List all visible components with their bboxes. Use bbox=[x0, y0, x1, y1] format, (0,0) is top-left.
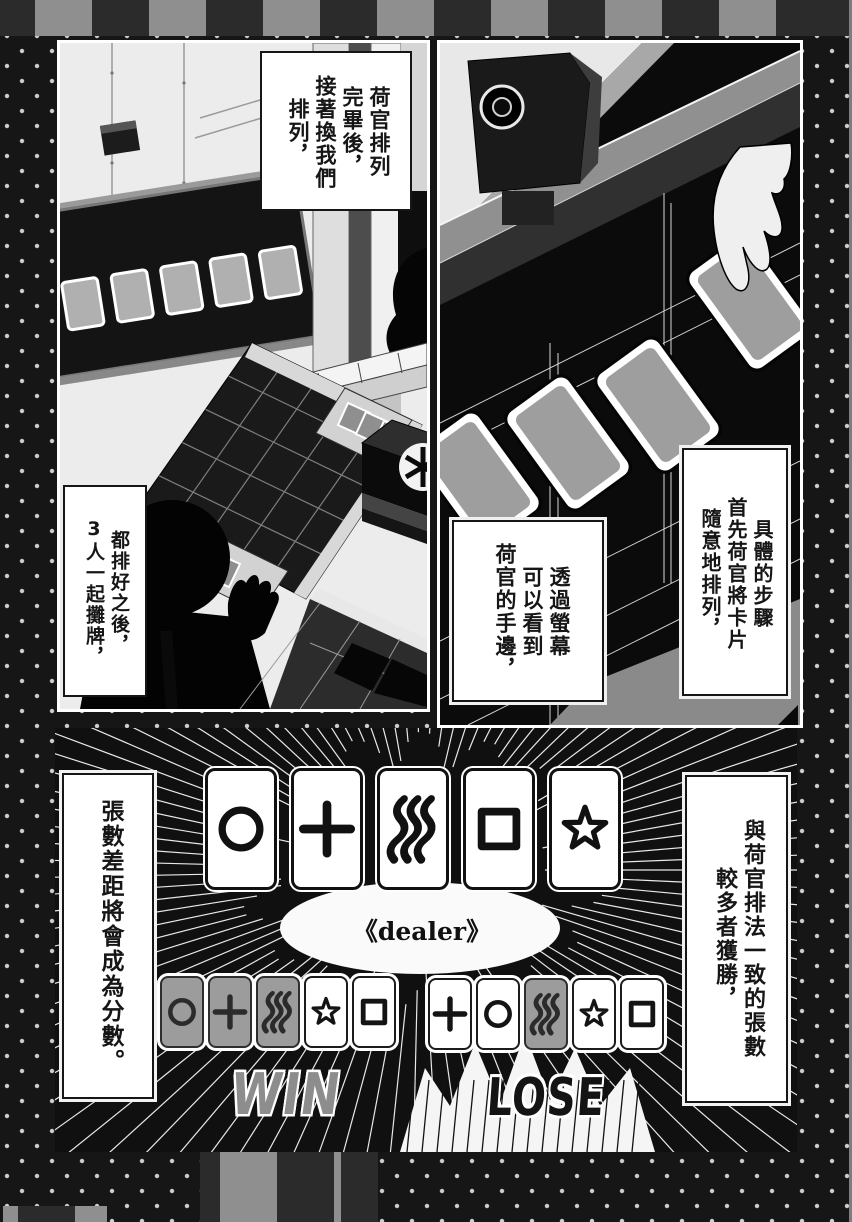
win-card-row bbox=[160, 976, 396, 1048]
lose-card-row bbox=[428, 978, 664, 1050]
panel-camera-hand: 透過螢幕 可以看到 荷官的手邊， 具體的步驟 首先荷官將卡片 隨意地排列， bbox=[437, 40, 803, 728]
note-score-difference: 張數差距將會成為分數。 bbox=[62, 773, 154, 1099]
waves-icon bbox=[528, 986, 564, 1042]
checkerboard-border-bottom-row2 bbox=[3, 1206, 107, 1222]
dealer-card-square bbox=[463, 768, 535, 890]
win-card-circle-match bbox=[160, 976, 204, 1048]
lose-card-plus bbox=[428, 978, 472, 1050]
lose-card-circle bbox=[476, 978, 520, 1050]
plus-icon bbox=[212, 984, 248, 1040]
lose-card-square bbox=[620, 978, 664, 1050]
dealer-label: 《dealer》 bbox=[337, 912, 507, 948]
speech-bubble-steps: 具體的步驟 首先荷官將卡片 隨意地排列， bbox=[682, 448, 788, 696]
lose-card-waves-match bbox=[524, 978, 568, 1050]
square-icon bbox=[624, 986, 660, 1042]
circle-icon bbox=[212, 784, 270, 874]
dealer-card-plus bbox=[291, 768, 363, 890]
star-icon bbox=[308, 984, 344, 1040]
star-icon bbox=[576, 986, 612, 1042]
panel-room-table: 荷官排列 完畢後， 接著換我們 排列， 都排好之後， 3人一起攤牌， bbox=[57, 40, 430, 712]
lose-label: LOSE bbox=[485, 1068, 607, 1128]
waves-icon bbox=[260, 984, 296, 1040]
speech-bubble-showdown: 都排好之後， 3人一起攤牌， bbox=[63, 485, 147, 697]
win-card-waves-match bbox=[256, 976, 300, 1048]
dealer-card-circle bbox=[205, 768, 277, 890]
note-win-condition: 與荷官排法一致的張數 較多者獲勝， bbox=[685, 775, 788, 1103]
win-label: WIN bbox=[227, 1060, 346, 1128]
checkerboard-border-top bbox=[0, 0, 852, 36]
plus-icon bbox=[432, 986, 468, 1042]
star-icon bbox=[556, 784, 614, 874]
lose-card-star bbox=[572, 978, 616, 1050]
win-card-square bbox=[352, 976, 396, 1048]
square-icon bbox=[356, 984, 392, 1040]
dealer-card-star bbox=[549, 768, 621, 890]
square-icon bbox=[470, 784, 528, 874]
dealer-card-row bbox=[205, 768, 621, 890]
dealer-card-waves bbox=[377, 768, 449, 890]
speech-bubble-dealer-done: 荷官排列 完畢後， 接著換我們 排列， bbox=[260, 51, 412, 211]
win-card-star bbox=[304, 976, 348, 1048]
circle-icon bbox=[480, 986, 516, 1042]
win-card-plus-match bbox=[208, 976, 252, 1048]
speech-bubble-screen: 透過螢幕 可以看到 荷官的手邊， bbox=[452, 520, 604, 702]
plus-icon bbox=[298, 784, 356, 874]
circle-icon bbox=[164, 984, 200, 1040]
wall-camera-icon bbox=[100, 120, 140, 155]
waves-icon bbox=[384, 784, 442, 874]
manga-page: 荷官排列 完畢後， 接著換我們 排列， 都排好之後， 3人一起攤牌， bbox=[0, 0, 852, 1222]
checkerboard-border-bottom-row1 bbox=[200, 1148, 378, 1222]
